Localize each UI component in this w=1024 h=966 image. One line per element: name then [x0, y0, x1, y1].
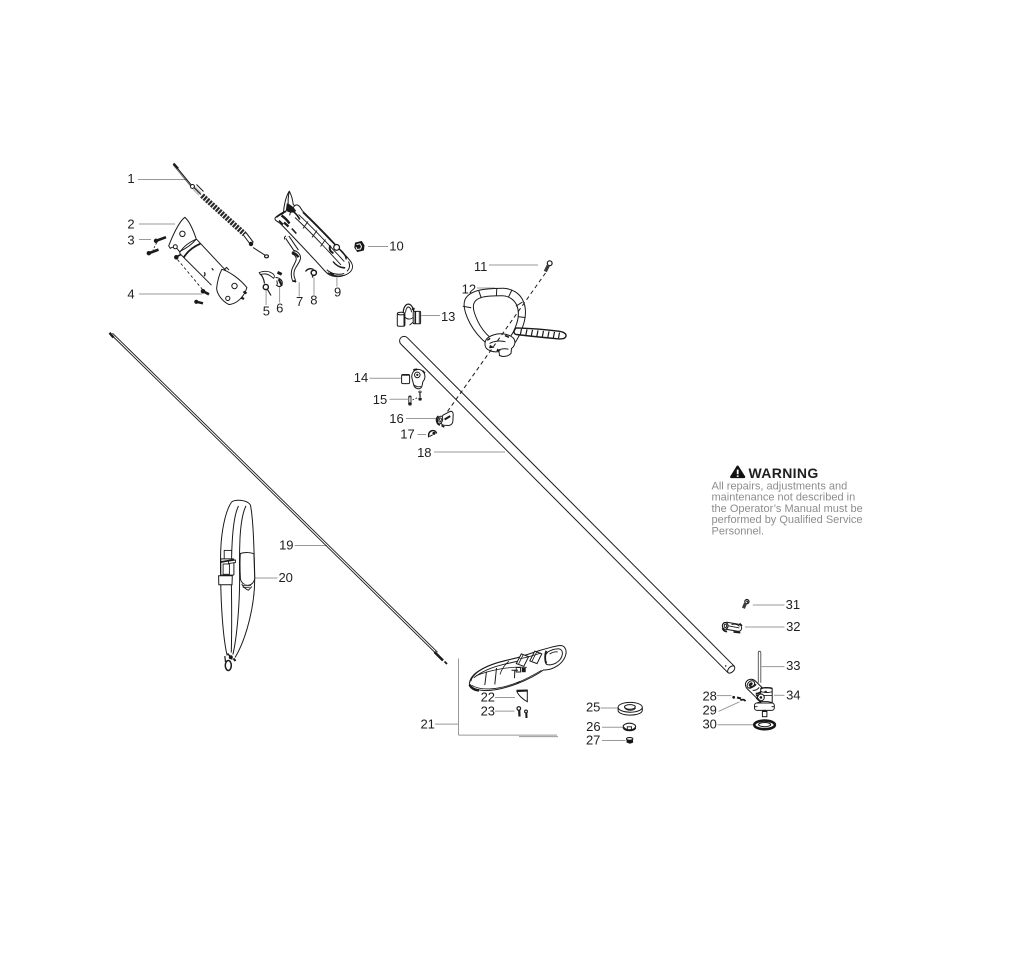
svg-text:11: 11 — [474, 259, 488, 274]
svg-text:21: 21 — [420, 717, 434, 732]
svg-text:7: 7 — [296, 294, 303, 309]
svg-text:19: 19 — [279, 538, 293, 553]
svg-text:27: 27 — [586, 732, 600, 747]
svg-text:2: 2 — [127, 217, 134, 232]
svg-text:6: 6 — [276, 301, 283, 316]
svg-text:28: 28 — [702, 689, 716, 704]
svg-text:16: 16 — [389, 411, 403, 426]
svg-text:8: 8 — [310, 293, 317, 308]
svg-text:25: 25 — [586, 700, 600, 715]
svg-text:1: 1 — [127, 171, 134, 186]
svg-text:22: 22 — [481, 689, 495, 704]
svg-text:32: 32 — [786, 619, 800, 634]
svg-text:17: 17 — [400, 427, 414, 442]
svg-text:30: 30 — [702, 717, 716, 732]
svg-text:31: 31 — [786, 597, 800, 612]
svg-text:WARNING: WARNING — [749, 465, 819, 481]
svg-text:20: 20 — [278, 570, 292, 585]
svg-text:23: 23 — [481, 704, 495, 719]
svg-text:5: 5 — [263, 304, 270, 319]
svg-text:33: 33 — [786, 658, 800, 673]
svg-text:4: 4 — [127, 287, 134, 302]
svg-text:Personnel.: Personnel. — [712, 525, 765, 537]
svg-text:10: 10 — [389, 239, 403, 254]
svg-text:All repairs, adjustments and: All repairs, adjustments and — [712, 481, 848, 493]
svg-text:performed by Qualified Service: performed by Qualified Service — [712, 514, 863, 526]
svg-text:9: 9 — [334, 284, 341, 299]
svg-text:18: 18 — [417, 445, 431, 460]
svg-text:29: 29 — [702, 703, 716, 718]
svg-text:15: 15 — [373, 392, 387, 407]
svg-text:the Operator’s Manual must be: the Operator’s Manual must be — [712, 503, 863, 515]
svg-text:34: 34 — [786, 688, 800, 703]
svg-text:3: 3 — [127, 233, 134, 248]
svg-text:maintenance not described in: maintenance not described in — [712, 492, 856, 504]
svg-text:14: 14 — [354, 370, 368, 385]
svg-text:13: 13 — [441, 309, 455, 324]
